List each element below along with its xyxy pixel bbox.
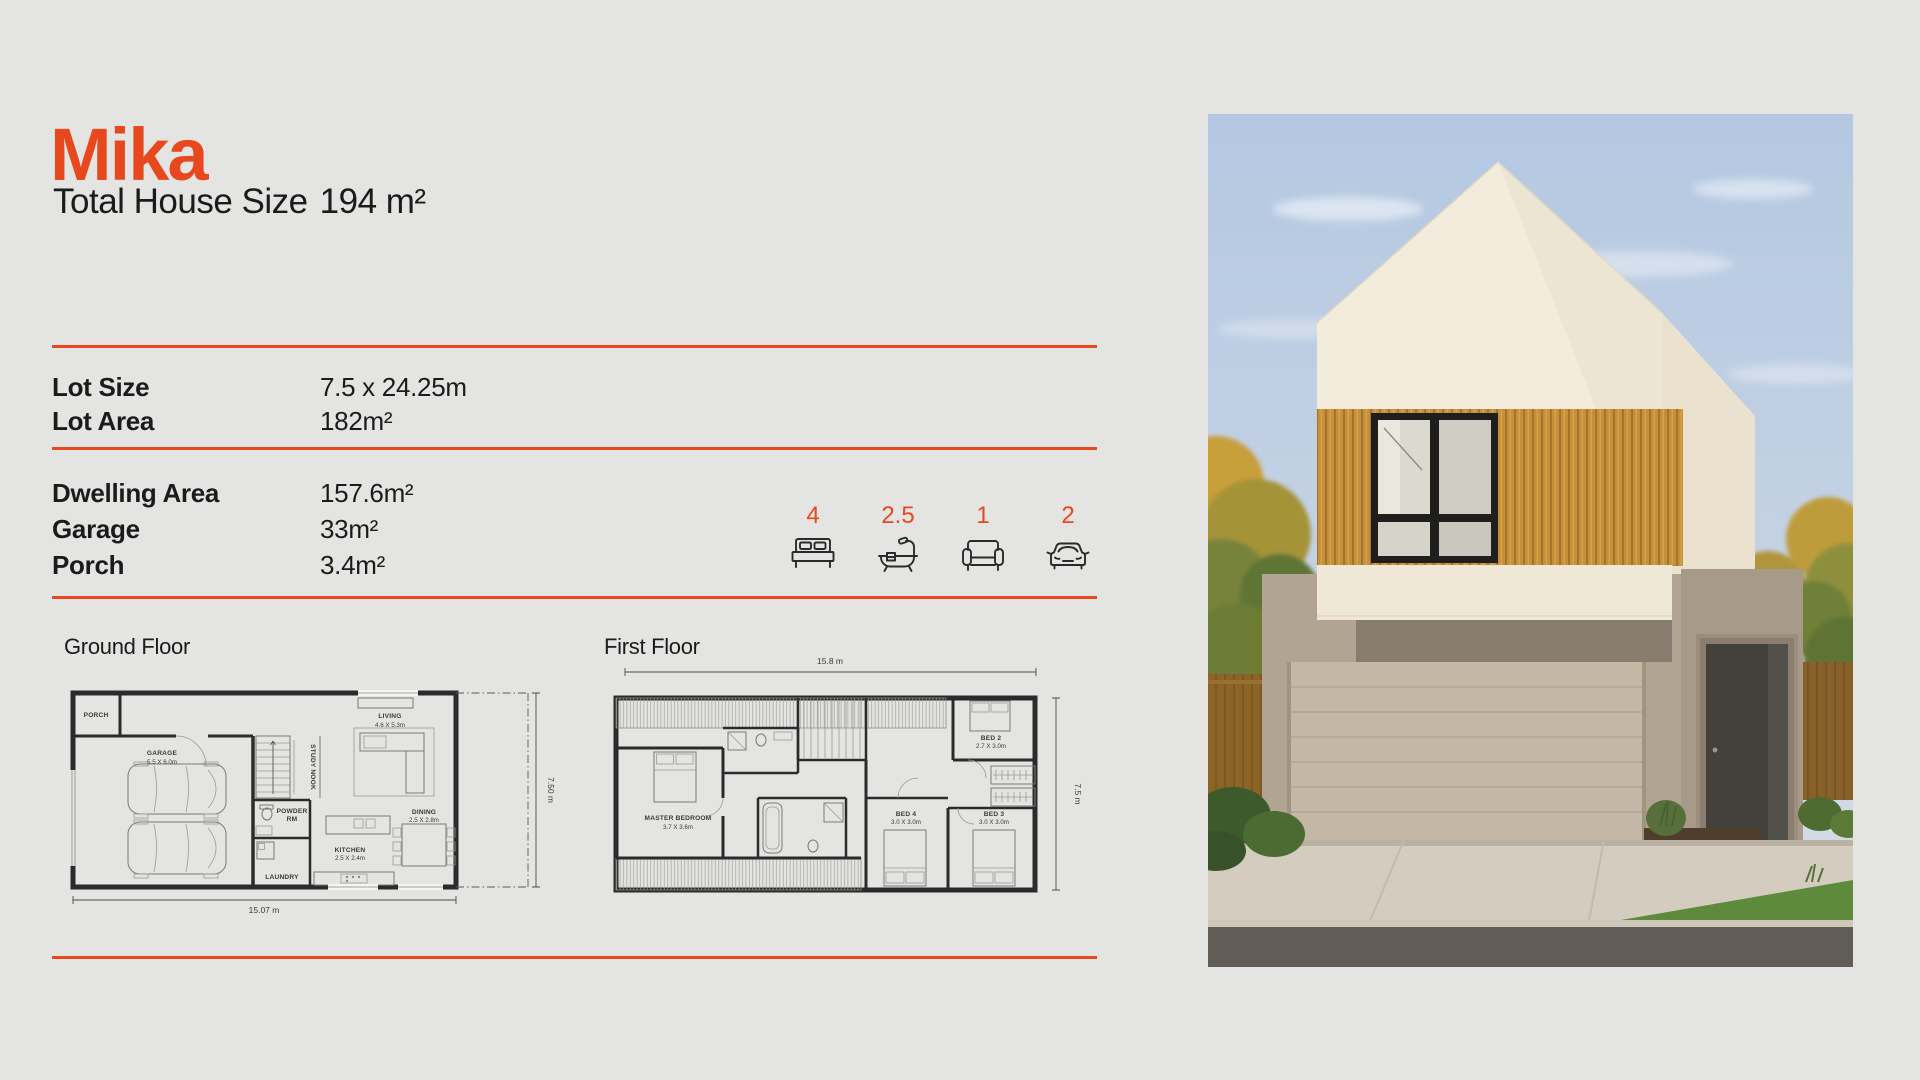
wardrobe-units xyxy=(991,766,1035,806)
road xyxy=(1208,927,1853,967)
divider-line-1 xyxy=(52,345,1097,348)
room-size-bed4: 3.0 X 3.0m xyxy=(891,819,921,826)
divider-line-4 xyxy=(52,956,1097,959)
room-label-dining: DINING xyxy=(412,809,436,816)
garage-label: Garage xyxy=(52,514,140,545)
feature-car-spaces: 2 xyxy=(1036,502,1100,574)
bed2-bed xyxy=(970,701,1010,731)
lot-size-value: 7.5 x 24.25m xyxy=(320,372,467,403)
room-label-bed2: BED 2 xyxy=(981,735,1002,742)
divider-line-3 xyxy=(52,596,1097,599)
lot-area-value: 182m² xyxy=(320,406,392,437)
room-label-powder: POWDER xyxy=(277,808,308,815)
entry-door xyxy=(1696,634,1798,844)
porch-label: Porch xyxy=(52,550,124,581)
brochure-page: Mika Total House Size194 m² Lot Size 7.5… xyxy=(0,0,1920,1080)
first-floor-depth-text: 7.5 m xyxy=(1073,783,1083,804)
living-count: 1 xyxy=(951,502,1015,530)
car-icon xyxy=(1044,536,1092,574)
room-label-laundry: LAUNDRY xyxy=(265,874,299,881)
ground-floor-width-text: 15.07 m xyxy=(249,905,280,915)
bathroom-count: 2.5 xyxy=(866,502,930,530)
porch-value: 3.4m² xyxy=(320,550,385,581)
bedroom-count: 4 xyxy=(781,502,845,530)
feature-living-rooms: 1 xyxy=(951,502,1015,574)
house-render-image xyxy=(1208,114,1853,967)
room-size-kitchen: 2.5 X 2.4m xyxy=(335,855,365,862)
site-boundary-dashed xyxy=(456,693,528,887)
room-label-bed4: BED 4 xyxy=(896,811,917,818)
room-label-study-nook: STUDY NOOK xyxy=(309,744,316,790)
bed4-bed xyxy=(884,830,926,886)
lot-area-label: Lot Area xyxy=(52,406,154,437)
room-label-porch: PORCH xyxy=(84,712,109,719)
first-floor-depth-dimension xyxy=(1052,698,1060,890)
room-size-living: 4.6 X 5.3m xyxy=(375,722,405,729)
room-label-powder-2: RM xyxy=(287,816,298,823)
first-floor-width-text: 15.8 m xyxy=(817,656,843,666)
room-size-bed3: 3.0 X 3.0m xyxy=(979,819,1009,826)
room-size-bed2: 2.7 X 3.0m xyxy=(976,743,1006,750)
car-count: 2 xyxy=(1036,502,1100,530)
room-label-living: LIVING xyxy=(378,713,401,720)
car-outline-2 xyxy=(128,820,226,878)
divider-line-2 xyxy=(52,447,1097,450)
garage-door xyxy=(1287,662,1646,840)
total-house-size: Total House Size194 m² xyxy=(53,182,426,222)
sofa-icon xyxy=(959,536,1007,574)
ground-floor-heading: Ground Floor xyxy=(64,634,190,660)
car-outline-1 xyxy=(128,762,226,818)
ground-floor-depth-text: 7.50 m xyxy=(546,777,556,803)
ground-floor-width-dimension xyxy=(73,896,456,904)
room-label-bed3: BED 3 xyxy=(984,811,1005,818)
room-size-dining: 2.5 X 2.8m xyxy=(409,817,439,824)
ground-floor-depth-dimension xyxy=(532,693,540,887)
garage-value: 33m² xyxy=(320,514,378,545)
feature-bedrooms: 4 xyxy=(781,502,845,574)
bed-icon xyxy=(789,536,837,574)
lot-size-label: Lot Size xyxy=(52,372,149,403)
bed3-bed xyxy=(973,830,1015,886)
room-label-kitchen: KITCHEN xyxy=(335,847,366,854)
room-size-master: 3.7 X 3.6m xyxy=(663,824,693,831)
upper-window xyxy=(1371,413,1498,563)
first-floor-width-dimension xyxy=(625,668,1036,676)
dwelling-area-label: Dwelling Area xyxy=(52,478,219,509)
room-label-master: MASTER BEDROOM xyxy=(645,815,712,822)
total-house-size-label: Total House Size xyxy=(53,182,308,221)
room-label-garage: GARAGE xyxy=(147,750,178,757)
first-floor-plan: 15.8 m xyxy=(598,648,1103,908)
total-house-size-value: 194 m² xyxy=(320,182,426,221)
room-size-garage: 5.5 X 6.0m xyxy=(147,759,177,766)
bath-icon xyxy=(874,536,922,574)
feature-bathrooms: 2.5 xyxy=(866,502,930,574)
master-bed xyxy=(654,752,696,802)
ground-floor-plan: PORCH GARAGE 5.5 X 6.0m STUDY NOOK LIVIN… xyxy=(58,678,563,928)
dwelling-area-value: 157.6m² xyxy=(320,478,413,509)
